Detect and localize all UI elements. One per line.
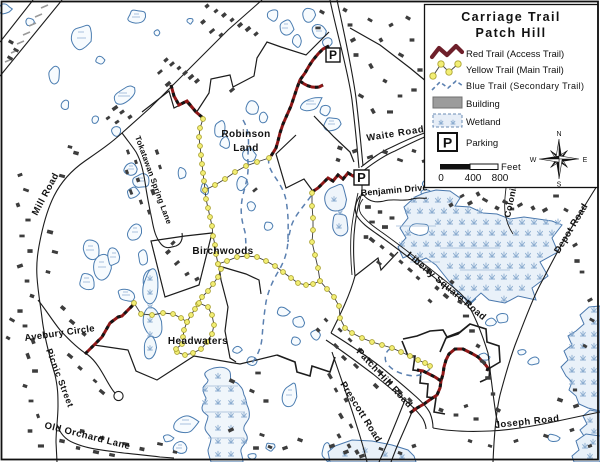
- svg-text:Patch Hill: Patch Hill: [476, 26, 547, 40]
- svg-text:Land: Land: [233, 143, 259, 154]
- svg-text:0: 0: [438, 173, 444, 184]
- svg-text:E: E: [583, 157, 588, 164]
- svg-text:Yellow Trail (Main Trail): Yellow Trail (Main Trail): [466, 65, 564, 76]
- svg-text:Red Trail (Access Trail): Red Trail (Access Trail): [466, 49, 564, 60]
- svg-text:N: N: [556, 131, 561, 138]
- svg-text:W: W: [530, 157, 537, 164]
- svg-text:400: 400: [465, 173, 482, 184]
- svg-text:Carriage Trail: Carriage Trail: [461, 10, 561, 24]
- svg-text:S: S: [557, 182, 562, 189]
- svg-text:Wetland: Wetland: [466, 117, 501, 128]
- svg-text:Birchwoods: Birchwoods: [192, 246, 253, 257]
- svg-text:P: P: [443, 135, 452, 151]
- svg-text:Headwaters: Headwaters: [168, 336, 228, 347]
- svg-text:Robinson: Robinson: [221, 129, 270, 140]
- svg-text:Blue Trail (Secondary Trail): Blue Trail (Secondary Trail): [466, 81, 584, 91]
- svg-text:Parking: Parking: [466, 138, 498, 149]
- svg-text:Feet: Feet: [501, 162, 521, 173]
- svg-text:P: P: [357, 170, 366, 185]
- svg-text:800: 800: [492, 173, 509, 184]
- svg-text:P: P: [329, 48, 337, 62]
- svg-text:Building: Building: [466, 99, 500, 110]
